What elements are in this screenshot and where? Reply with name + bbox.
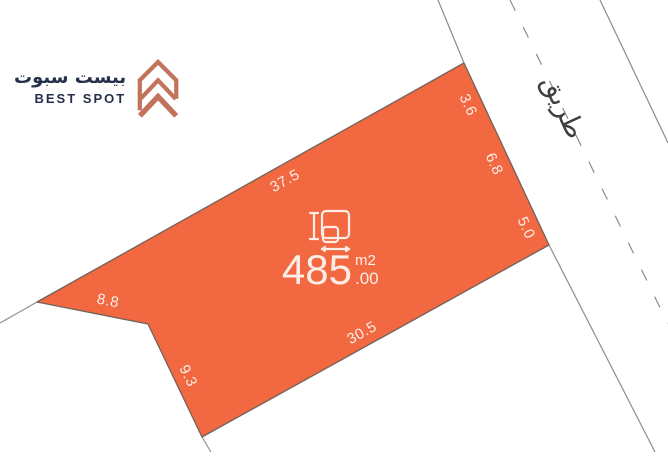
road-left-boundary-lower <box>549 245 655 452</box>
area-decimals: .00 <box>355 269 379 288</box>
brand-name-english: BEST SPOT <box>34 91 126 107</box>
boundary-extension-bottom <box>202 437 211 452</box>
brand-logo-text: بيست سبوت BEST SPOT <box>14 67 126 107</box>
area-unit: m2 <box>355 252 376 269</box>
area-value: 485 <box>282 246 352 293</box>
road-label: طريق <box>535 70 591 143</box>
chevron-house-icon <box>135 56 183 118</box>
brand-logo: بيست سبوت BEST SPOT <box>14 56 183 118</box>
road-centerline-dashed <box>510 0 668 324</box>
brand-name-arabic: بيست سبوت <box>14 67 126 89</box>
road-left-boundary-upper <box>438 0 464 63</box>
road-right-boundary <box>600 0 668 143</box>
boundary-extension-left <box>0 302 37 323</box>
